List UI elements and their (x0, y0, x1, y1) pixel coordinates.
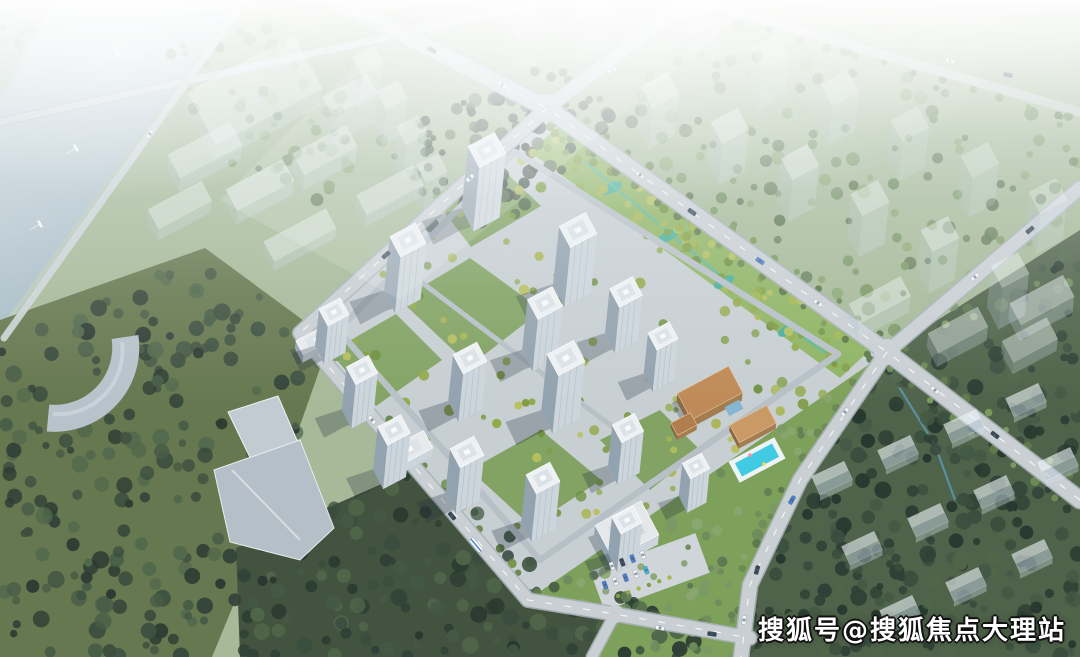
watermark: 搜狐号@搜狐焦点大理站 (758, 610, 1066, 647)
haze-overlay (0, 0, 1080, 657)
aerial-rendering (0, 0, 1080, 657)
watermark-text: 搜狐号@搜狐焦点大理站 (758, 616, 1066, 646)
aerial-rendering-stage: 搜狐号@搜狐焦点大理站 (0, 0, 1080, 657)
